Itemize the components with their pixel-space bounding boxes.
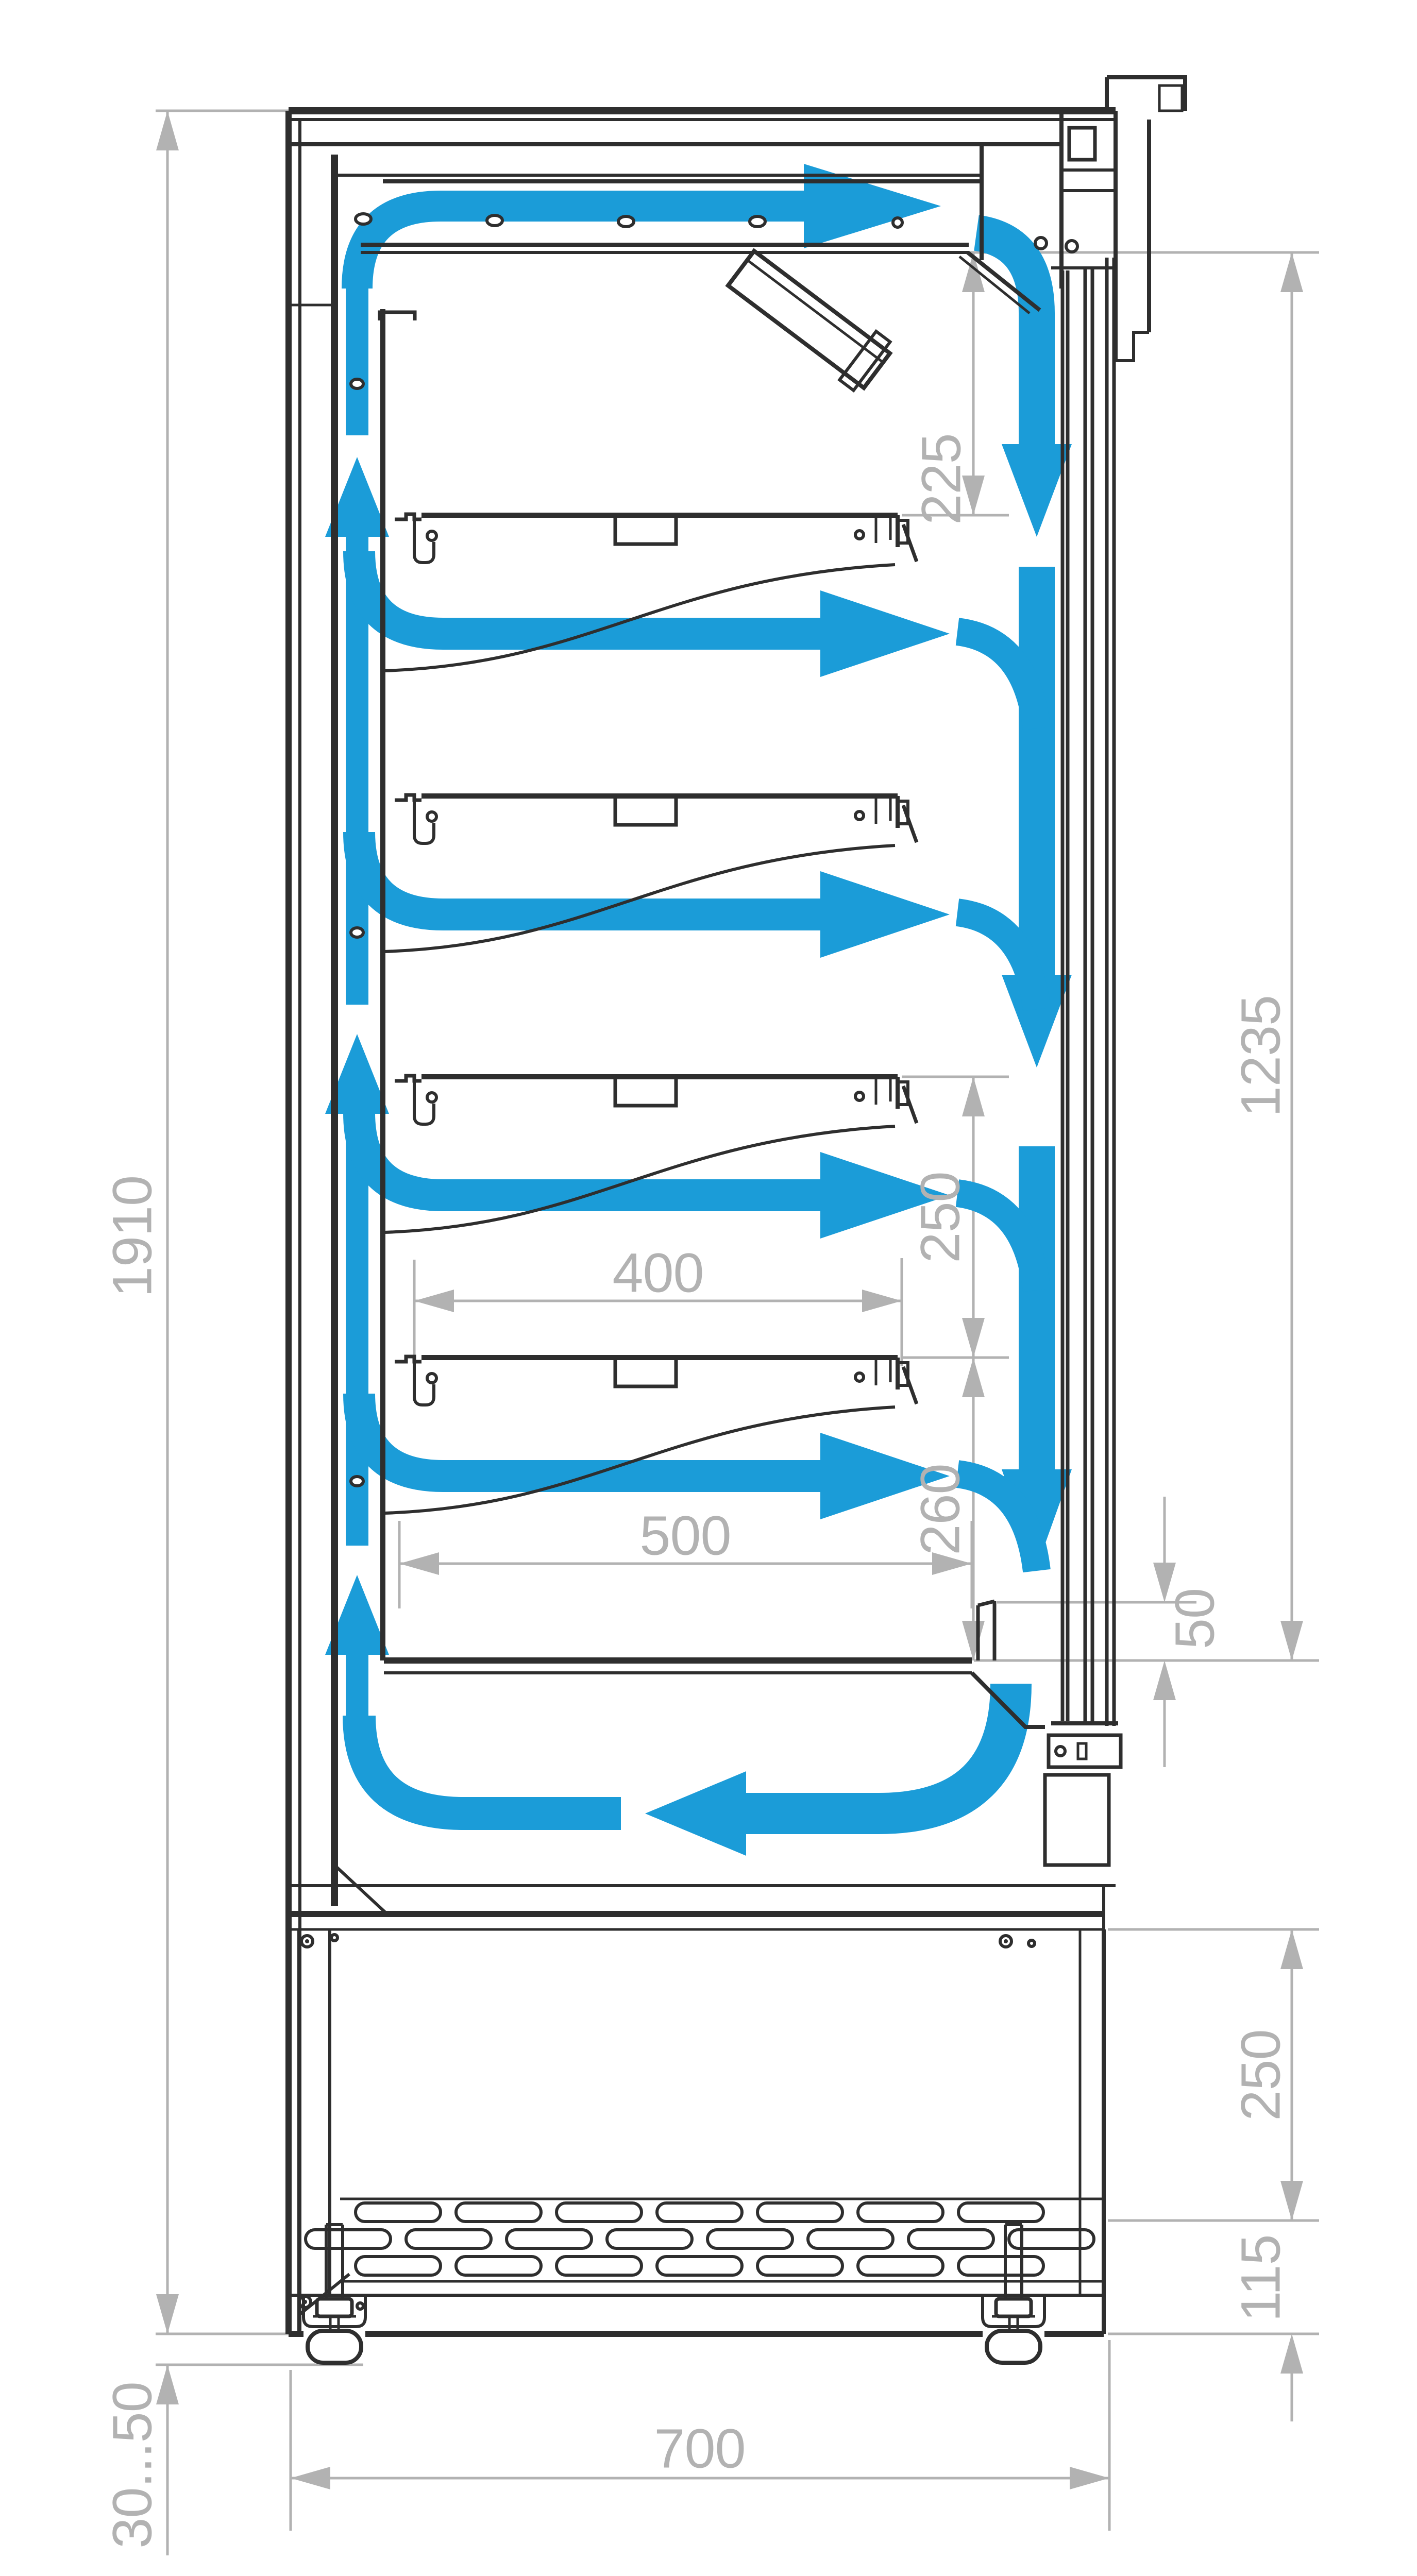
label-canopy-to-shelf: 225 (910, 433, 972, 524)
glass-door (1049, 258, 1121, 1767)
label-depth: 700 (654, 2417, 745, 2480)
bottom-return-flow (359, 1684, 1011, 1856)
light-fixture (723, 244, 896, 395)
label-outlet-gap: 50 (1163, 1588, 1226, 1649)
bottom-housing (289, 1865, 1116, 1929)
label-curtain-drop: 1235 (1229, 995, 1292, 1117)
ventilation-grille (306, 2203, 1094, 2275)
label-deck-depth: 500 (639, 1504, 731, 1567)
return-arrowhead (645, 1771, 746, 1856)
base-unit (289, 1929, 1104, 2334)
shelf-air-arrow-2 (359, 832, 950, 958)
dim-shelf-spacing (962, 1077, 985, 1660)
label-overall-height: 1910 (101, 1176, 163, 1297)
label-shelf-depth: 400 (612, 1242, 703, 1304)
drain-compartment (1045, 1775, 1109, 1865)
shelf-air-arrow-3 (359, 1113, 950, 1239)
airflow-arrows (325, 164, 1072, 1856)
label-shelf-spacing: 250 (909, 1172, 971, 1263)
cabinet-airflow-diagram: 1910 30...50 700 225 250 260 400 500 50 … (0, 0, 1417, 2576)
label-foot-adjust: 30...50 (101, 2382, 163, 2548)
shelf-air-arrow-1 (359, 551, 950, 677)
shelf-air-arrow-4 (359, 1394, 950, 1519)
label-base-upper: 250 (1229, 2029, 1292, 2121)
label-base-plinth: 115 (1229, 2234, 1292, 2321)
dim-base-heights (1280, 1929, 1303, 2421)
label-shelf-to-deck: 260 (909, 1464, 971, 1555)
airflow-diagram-page: 1910 30...50 700 225 250 260 400 500 50 … (0, 0, 1417, 2576)
dim-curtain-drop (1280, 252, 1303, 1660)
